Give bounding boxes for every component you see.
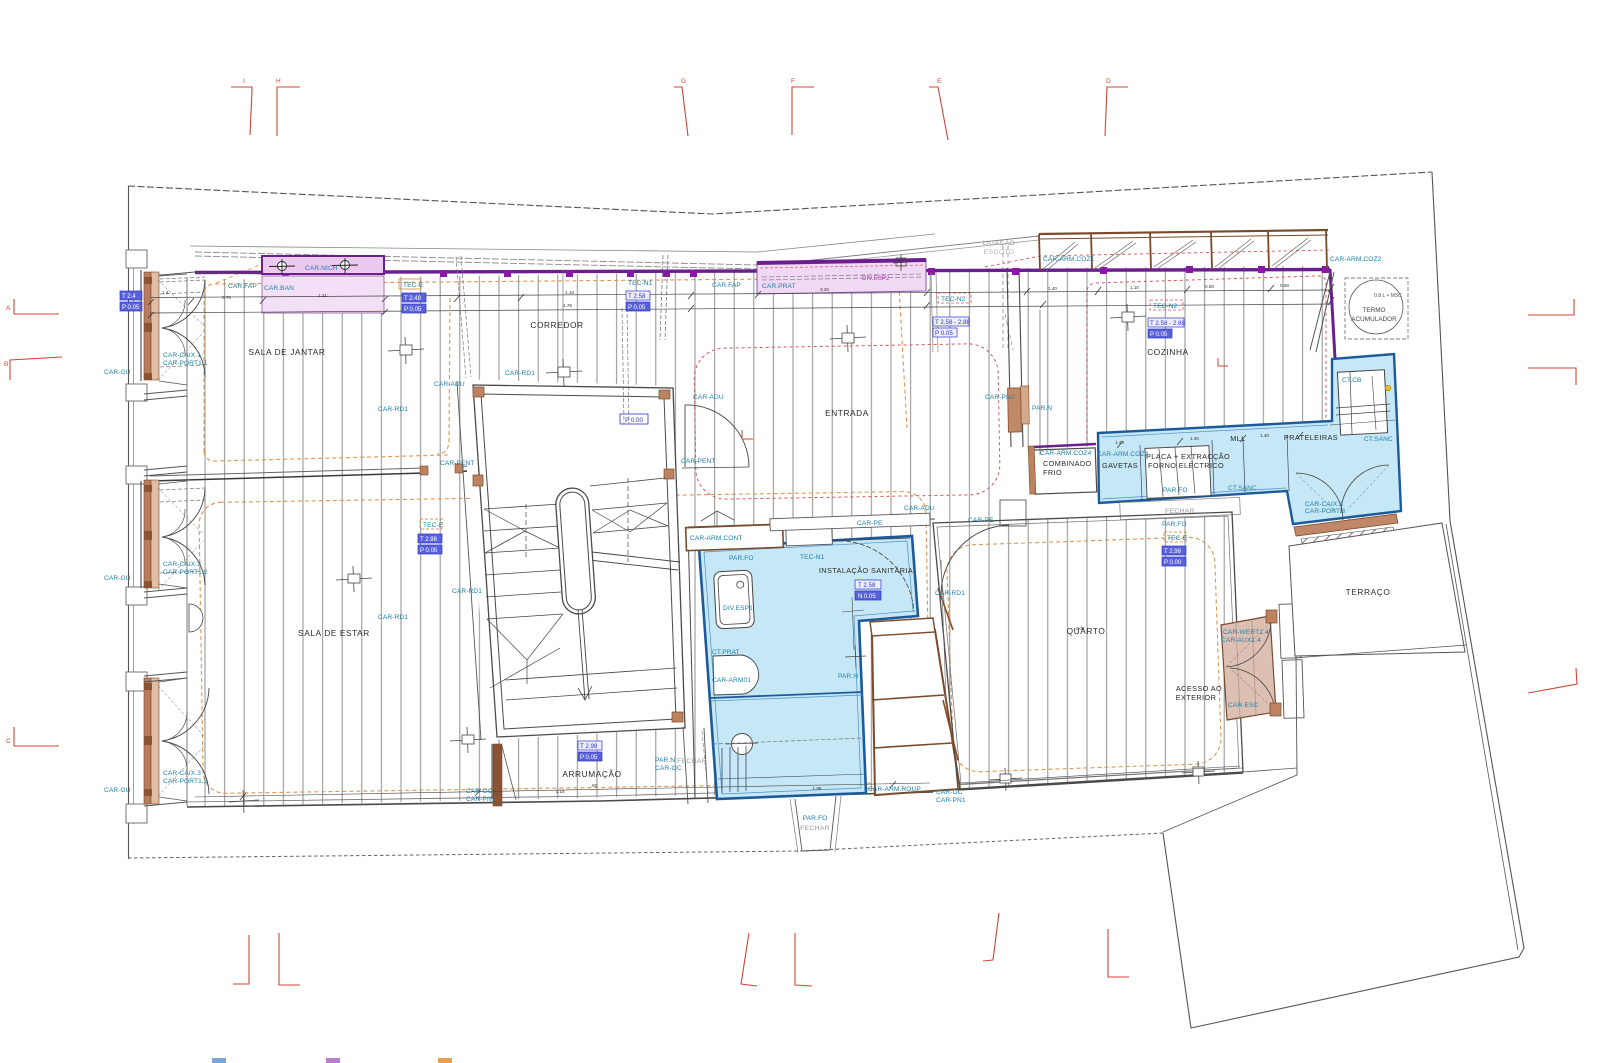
svg-text:SALA DE ESTAR: SALA DE ESTAR <box>298 628 370 638</box>
svg-text:PLACA + EXTRACÇÃO: PLACA + EXTRACÇÃO <box>1146 452 1230 461</box>
svg-text:CAR-ARM.COZ4: CAR-ARM.COZ4 <box>1040 450 1092 457</box>
svg-text:1.40: 1.40 <box>1190 436 1199 441</box>
svg-text:MLL: MLL <box>1230 434 1245 443</box>
svg-text:CAR-GU: CAR-GU <box>104 787 131 794</box>
svg-text:LIGAÇÃO: LIGAÇÃO <box>983 238 1015 247</box>
svg-text:CAR-CAIX.1: CAR-CAIX.1 <box>163 352 201 359</box>
svg-text:1.40: 1.40 <box>1048 286 1057 291</box>
svg-text:ARRUMAÇÃO: ARRUMAÇÃO <box>562 769 621 779</box>
svg-text:CAR-ESC: CAR-ESC <box>1228 702 1259 709</box>
svg-text:T 2.58: T 2.58 <box>858 582 876 589</box>
svg-text:PAR.N: PAR.N <box>1032 405 1052 412</box>
svg-text:P 0.05: P 0.05 <box>404 307 422 313</box>
svg-text:0.76: 0.76 <box>222 295 231 300</box>
svg-text:CAR-PORT.3: CAR-PORT.3 <box>1305 508 1345 515</box>
svg-text:T 2.98: T 2.98 <box>1164 549 1182 555</box>
svg-text:CAR-PN1: CAR-PN1 <box>466 796 496 803</box>
svg-text:CAR-ARM.COZ3: CAR-ARM.COZ3 <box>1097 451 1149 458</box>
svg-text:CAR-OC: CAR-OC <box>655 765 682 772</box>
svg-text:1.18: 1.18 <box>565 290 574 295</box>
svg-text:1.98: 1.98 <box>813 786 822 791</box>
svg-text:T 2.58 - 2.88: T 2.58 - 2.88 <box>1150 320 1186 327</box>
svg-text:TEC-E: TEC-E <box>1167 535 1188 542</box>
svg-text:B: B <box>4 361 8 368</box>
svg-text:TERMO: TERMO <box>1362 307 1385 314</box>
svg-text:CAR-GU: CAR-GU <box>104 369 131 376</box>
svg-text:CAR-PORT1.3: CAR-PORT1.3 <box>163 778 208 785</box>
svg-text:CAR-PORT1.1: CAR-PORT1.1 <box>163 360 208 367</box>
svg-text:CAR.NICH: CAR.NICH <box>305 265 338 272</box>
svg-text:C: C <box>6 738 11 745</box>
svg-text:TEC-N1: TEC-N1 <box>800 554 825 561</box>
svg-text:T 2.58 - 2.88: T 2.58 - 2.88 <box>935 319 971 326</box>
svg-text:F: F <box>791 78 795 85</box>
svg-text:GAVETAS: GAVETAS <box>1102 461 1138 470</box>
svg-text:CAR.FAP: CAR.FAP <box>712 282 741 289</box>
svg-text:CAR-OC: CAR-OC <box>466 788 493 795</box>
svg-text:CAR-RD1: CAR-RD1 <box>378 406 408 413</box>
svg-text:FECHAR: FECHAR <box>800 825 830 832</box>
svg-text:0.58: 0.58 <box>1280 283 1289 288</box>
svg-text:EXTERIOR: EXTERIOR <box>1176 693 1217 702</box>
svg-text:CAR-PE: CAR-PE <box>968 517 994 524</box>
svg-text:P 0.05: P 0.05 <box>1150 332 1168 338</box>
svg-text:1.40: 1.40 <box>1260 433 1269 438</box>
svg-text:TEC-E: TEC-E <box>423 522 444 529</box>
svg-text:DIV.ESP1: DIV.ESP1 <box>723 605 753 612</box>
svg-text:CORREDOR: CORREDOR <box>530 320 583 330</box>
svg-text:CAR-PENT: CAR-PENT <box>440 460 475 467</box>
svg-text:CT.CB: CT.CB <box>1342 377 1362 384</box>
svg-text:T 2.48: T 2.48 <box>404 296 422 302</box>
svg-text:1.78: 1.78 <box>563 303 572 308</box>
svg-text:CAR-WERT1.4: CAR-WERT1.4 <box>1223 629 1269 636</box>
svg-text:P 0.05: P 0.05 <box>935 330 953 337</box>
svg-text:PAR.FO: PAR.FO <box>803 815 828 822</box>
svg-text:ENTRADA: ENTRADA <box>825 408 869 418</box>
svg-text:G: G <box>681 78 686 85</box>
svg-text:T 2.98: T 2.98 <box>580 743 598 750</box>
svg-text:INSTALAÇÃO SANITÁRIA: INSTALAÇÃO SANITÁRIA <box>819 566 913 575</box>
svg-text:P 0.05: P 0.05 <box>580 755 598 761</box>
svg-text:CAR-AUX1.4: CAR-AUX1.4 <box>1221 637 1261 644</box>
svg-text:CT.SANC: CT.SANC <box>1364 436 1393 443</box>
svg-text:PAR.FO: PAR.FO <box>1163 487 1188 494</box>
svg-text:CAR-RD1: CAR-RD1 <box>452 588 482 595</box>
svg-text:CAR-ARM.ROUP: CAR-ARM.ROUP <box>868 786 921 793</box>
svg-text:ACUMULADOR: ACUMULADOR <box>1351 316 1397 323</box>
svg-text:0.8 L + MSC: 0.8 L + MSC <box>1374 293 1402 299</box>
svg-text:PAR.N: PAR.N <box>838 673 858 680</box>
svg-text:CAR-PN1: CAR-PN1 <box>936 797 966 804</box>
svg-text:CAR-ADU: CAR-ADU <box>434 381 465 388</box>
svg-text:COMBINADO: COMBINADO <box>1043 459 1092 468</box>
svg-text:PAR.FO: PAR.FO <box>729 555 754 562</box>
svg-text:CAR-PENT: CAR-PENT <box>681 458 716 465</box>
svg-text:PAR.FO: PAR.FO <box>1162 521 1187 528</box>
svg-text:1.10: 1.10 <box>1130 285 1139 290</box>
svg-text:DIV.ESP2: DIV.ESP2 <box>862 275 890 282</box>
svg-text:CAR-RD1: CAR-RD1 <box>378 614 408 621</box>
svg-text:TERRAÇO: TERRAÇO <box>1346 587 1391 597</box>
svg-text:TEC-E: TEC-E <box>403 282 424 289</box>
svg-text:T 2.98: T 2.98 <box>420 537 438 543</box>
svg-text:CAR-RD1: CAR-RD1 <box>935 590 965 597</box>
svg-text:PAR.N: PAR.N <box>655 757 675 764</box>
svg-text:CAR-OC: CAR-OC <box>936 789 963 796</box>
svg-text:CAR-ARM.CONT: CAR-ARM.CONT <box>690 535 742 542</box>
svg-text:CT.PRAT: CT.PRAT <box>712 649 740 656</box>
svg-text:3.20: 3.20 <box>820 287 829 292</box>
svg-text:COZINHA: COZINHA <box>1147 347 1189 357</box>
svg-text:CAR-PE: CAR-PE <box>857 520 883 527</box>
svg-text:P 0.00: P 0.00 <box>625 417 643 424</box>
svg-text:1.4: 1.4 <box>162 290 169 295</box>
svg-text:TEC-N2: TEC-N2 <box>941 296 966 303</box>
svg-text:T 2.58: T 2.58 <box>628 293 646 300</box>
svg-text:FECHAR: FECHAR <box>677 758 707 765</box>
svg-text:CAR-ARM01: CAR-ARM01 <box>712 677 751 684</box>
svg-text:CAR-CAIX.3: CAR-CAIX.3 <box>163 770 201 777</box>
svg-text:FRIO: FRIO <box>1043 468 1062 477</box>
svg-text:.50: .50 <box>591 783 598 788</box>
svg-text:CAR.FAP: CAR.FAP <box>228 283 257 290</box>
svg-text:CAR-ARM.COZ1: CAR-ARM.COZ1 <box>1043 256 1095 263</box>
svg-text:CAR-ARM.COZ2: CAR-ARM.COZ2 <box>1330 256 1382 263</box>
svg-text:ACESSO AO: ACESSO AO <box>1176 684 1222 693</box>
svg-text:I: I <box>243 78 245 85</box>
svg-text:PRATELEIRAS: PRATELEIRAS <box>1284 433 1338 442</box>
svg-text:CAR-PORT1.2: CAR-PORT1.2 <box>163 569 208 576</box>
svg-text:ESGOTO: ESGOTO <box>984 249 1015 256</box>
svg-text:TEC-N1: TEC-N1 <box>628 280 653 287</box>
svg-text:H: H <box>276 78 281 85</box>
svg-text:0.50: 0.50 <box>1205 284 1214 289</box>
svg-text:CAR.PRAT: CAR.PRAT <box>762 283 796 290</box>
svg-text:FORNO ELÉCTRICO: FORNO ELÉCTRICO <box>1148 461 1224 470</box>
svg-text:CAR.BAN: CAR.BAN <box>264 285 294 292</box>
svg-text:P 0.05: P 0.05 <box>122 305 140 311</box>
svg-text:CAR-CAIX.2: CAR-CAIX.2 <box>163 561 201 568</box>
svg-text:QUARTO: QUARTO <box>1067 626 1106 636</box>
svg-text:CAR-ADU: CAR-ADU <box>693 394 724 401</box>
svg-text:CAR-PN2: CAR-PN2 <box>985 394 1015 401</box>
svg-text:T 2.4: T 2.4 <box>122 294 136 300</box>
svg-text:A: A <box>6 305 11 312</box>
svg-text:P 0.05: P 0.05 <box>420 548 438 554</box>
svg-text:P 0.00: P 0.00 <box>1164 560 1182 566</box>
svg-text:1.21: 1.21 <box>318 293 327 298</box>
svg-text:E: E <box>937 78 942 85</box>
svg-text:FECHAR: FECHAR <box>1165 508 1195 515</box>
svg-text:CAR-CAIX.3: CAR-CAIX.3 <box>1305 501 1343 508</box>
svg-text:CAR-GU: CAR-GU <box>104 575 131 582</box>
svg-text:CT.SANC: CT.SANC <box>1228 485 1257 492</box>
svg-text:CAR-ADU: CAR-ADU <box>904 505 935 512</box>
svg-text:N 0.05: N 0.05 <box>858 594 876 600</box>
svg-text:CAR-RD1: CAR-RD1 <box>505 370 535 377</box>
svg-text:TEC-N2: TEC-N2 <box>1153 303 1178 310</box>
svg-text:SALA DE JANTAR: SALA DE JANTAR <box>249 347 326 357</box>
svg-text:D: D <box>1106 78 1111 85</box>
svg-text:1.40: 1.40 <box>1115 440 1124 445</box>
svg-text:P 0.05: P 0.05 <box>628 305 646 311</box>
